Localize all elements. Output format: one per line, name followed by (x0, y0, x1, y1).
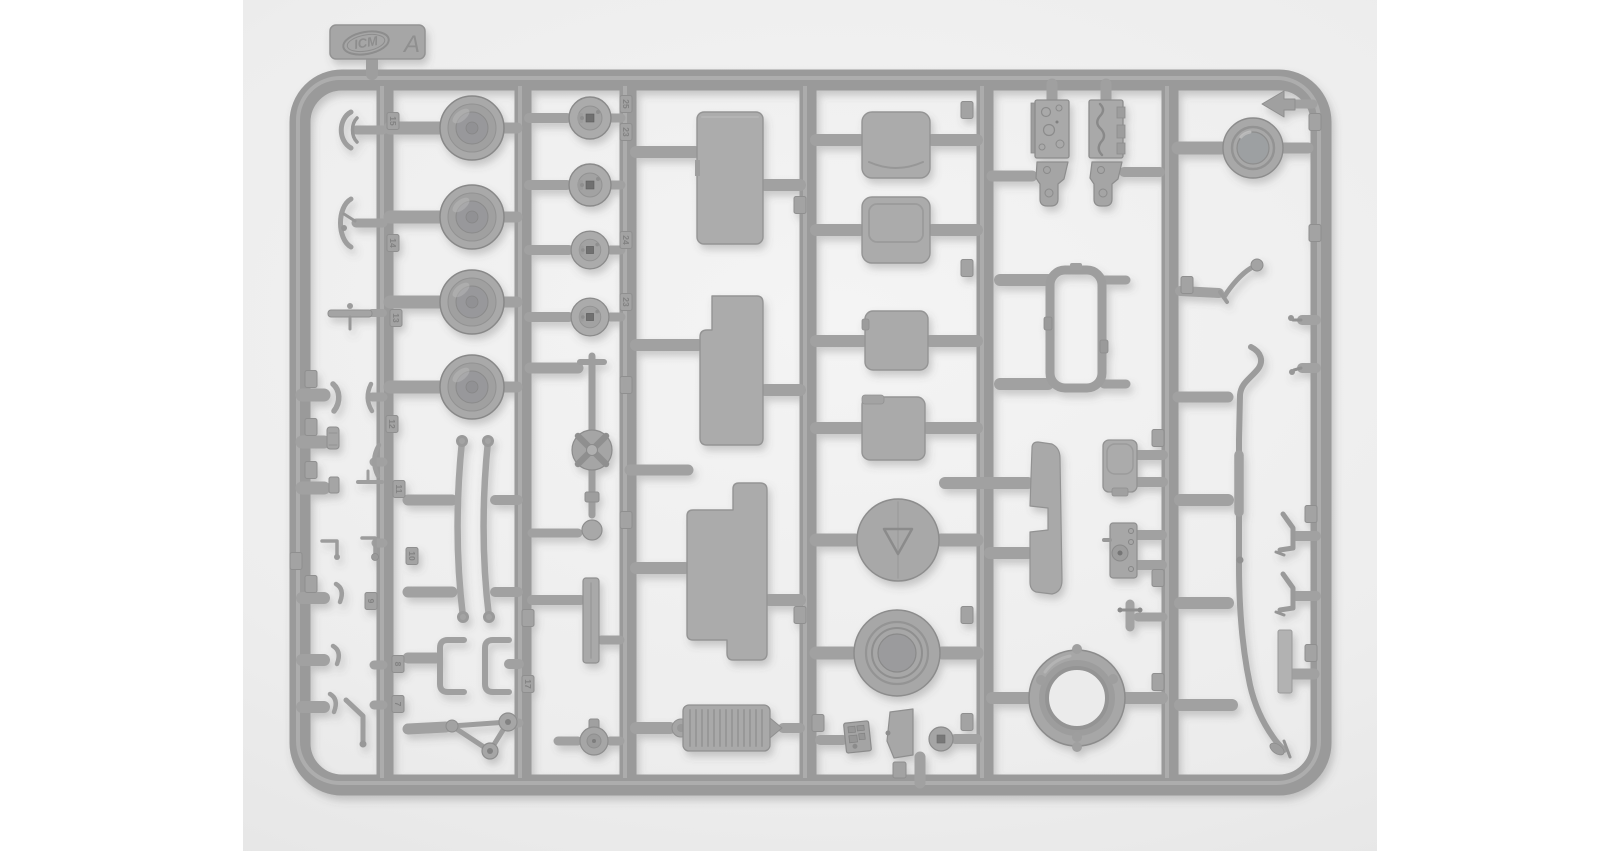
part-number-tag (812, 715, 824, 732)
part-number-tag (1309, 114, 1321, 131)
part-number-tag (620, 512, 632, 529)
part-number-tag (305, 576, 317, 593)
small-parts-cluster-left (322, 112, 382, 748)
part-number-tag (961, 102, 973, 119)
part-number-tag: 8 (392, 656, 404, 673)
step-bracket-2 (1276, 574, 1293, 615)
seat-back-4 (862, 395, 925, 460)
svg-text:25: 25 (621, 99, 631, 109)
molded-arrow-marker (1262, 91, 1295, 117)
wheel-hub-1 (569, 97, 611, 139)
svg-text:10: 10 (407, 551, 417, 561)
part-number-tag (794, 607, 806, 624)
sprue-frame-and-runners (298, 78, 1321, 785)
part-number-tag (305, 371, 317, 388)
svg-text:13: 13 (391, 313, 401, 323)
part-number-tag: 7 (392, 696, 404, 713)
leaf-springs (458, 437, 494, 622)
water-pump-pulley (580, 719, 608, 755)
part-number-tag: 23 (620, 294, 632, 311)
tire-4 (440, 355, 504, 419)
wheel-disc (854, 610, 940, 696)
part-number-tag: 13 (390, 310, 402, 327)
svg-text:11: 11 (394, 485, 404, 494)
svg-text:7: 7 (393, 702, 403, 707)
screenshot-root: 1514131211109871725232423 ICM A (0, 0, 1620, 851)
fender-bracket (1030, 442, 1062, 594)
part-number-tag: 14 (387, 235, 399, 252)
wheel-hub-2 (569, 164, 611, 206)
svg-text:14: 14 (388, 238, 398, 248)
radiator (672, 705, 782, 751)
flat-strip-part (1278, 630, 1292, 693)
sprue-label-tab: ICM A (330, 25, 425, 74)
tire-3 (440, 270, 504, 334)
part-number-tag (1305, 645, 1317, 662)
hood-panel (695, 112, 763, 244)
svg-text:8: 8 (393, 662, 403, 667)
seat-cushion-1 (862, 112, 930, 178)
front-axle-differential (572, 356, 612, 540)
part-number-tag (1181, 277, 1193, 294)
part-number-tag (794, 197, 806, 214)
part-number-tag (1152, 674, 1164, 691)
wheel-hub-3 (571, 231, 609, 269)
sprue: 1514131211109871725232423 ICM A (290, 25, 1321, 785)
tire-1 (440, 96, 504, 160)
part-number-tag (305, 462, 317, 479)
firewall-bracket (886, 709, 914, 758)
instrument-panel (843, 721, 871, 753)
small-disc-part (929, 727, 953, 751)
engine-block-half-right (1089, 84, 1125, 206)
c-shaped-handles (440, 640, 509, 692)
part-number-tag: 12 (386, 416, 398, 433)
part-number-tag (1152, 570, 1164, 587)
part-number-tag: 9 (365, 593, 377, 610)
engine-block-half-left (1031, 84, 1069, 206)
pedal-linkage-triangle (446, 713, 517, 759)
part-number-tag: 15 (387, 113, 399, 130)
part-number-tag: 17 (522, 676, 534, 693)
fuel-pump-part (1104, 523, 1137, 578)
steering-wheel (1029, 644, 1125, 752)
seat-backrest-panel (687, 483, 767, 660)
wheel-hub-4 (571, 298, 609, 336)
headlight-shell (1223, 118, 1283, 178)
border-knob-1 (1288, 315, 1316, 321)
part-number-tag (1309, 225, 1321, 242)
tire-2 (440, 185, 504, 249)
part-number-tag (961, 260, 973, 277)
part-number-tag: 11 (393, 481, 405, 498)
part-number-tag (1305, 506, 1317, 523)
svg-text:12: 12 (387, 419, 397, 429)
svg-text:15: 15 (388, 116, 398, 126)
part-number-tag: 24 (620, 232, 632, 249)
side-panel (700, 296, 763, 445)
sprue-letter: A (402, 31, 420, 58)
part-number-tag (1152, 430, 1164, 447)
svg-text:17: 17 (523, 679, 533, 689)
engine-subframe (1044, 263, 1108, 388)
step-bracket-1 (1276, 514, 1293, 555)
part-number-tag (522, 610, 534, 627)
svg-text:23: 23 (621, 297, 631, 307)
small-block-part (893, 762, 906, 778)
svg-text:23: 23 (621, 127, 631, 137)
svg-text:24: 24 (621, 235, 631, 245)
sprue-photo: 1514131211109871725232423 ICM A (0, 0, 1620, 851)
battery-box (1103, 440, 1137, 496)
gear-lever (1220, 259, 1263, 302)
spare-wheel-cover-disc (857, 499, 939, 581)
part-number-tag: 25 (620, 96, 632, 113)
part-number-tag (290, 553, 302, 570)
part-number-tag (620, 377, 632, 394)
part-number-tag: 23 (620, 124, 632, 141)
part-number-tag (305, 419, 317, 436)
part-number-tag (961, 607, 973, 624)
part-number-tag: 10 (406, 548, 418, 565)
seat-cushion-2 (862, 197, 930, 263)
seat-back-3 (862, 311, 928, 370)
svg-text:9: 9 (366, 599, 376, 604)
part-number-tag (961, 714, 973, 731)
flat-bar-part (583, 578, 599, 663)
